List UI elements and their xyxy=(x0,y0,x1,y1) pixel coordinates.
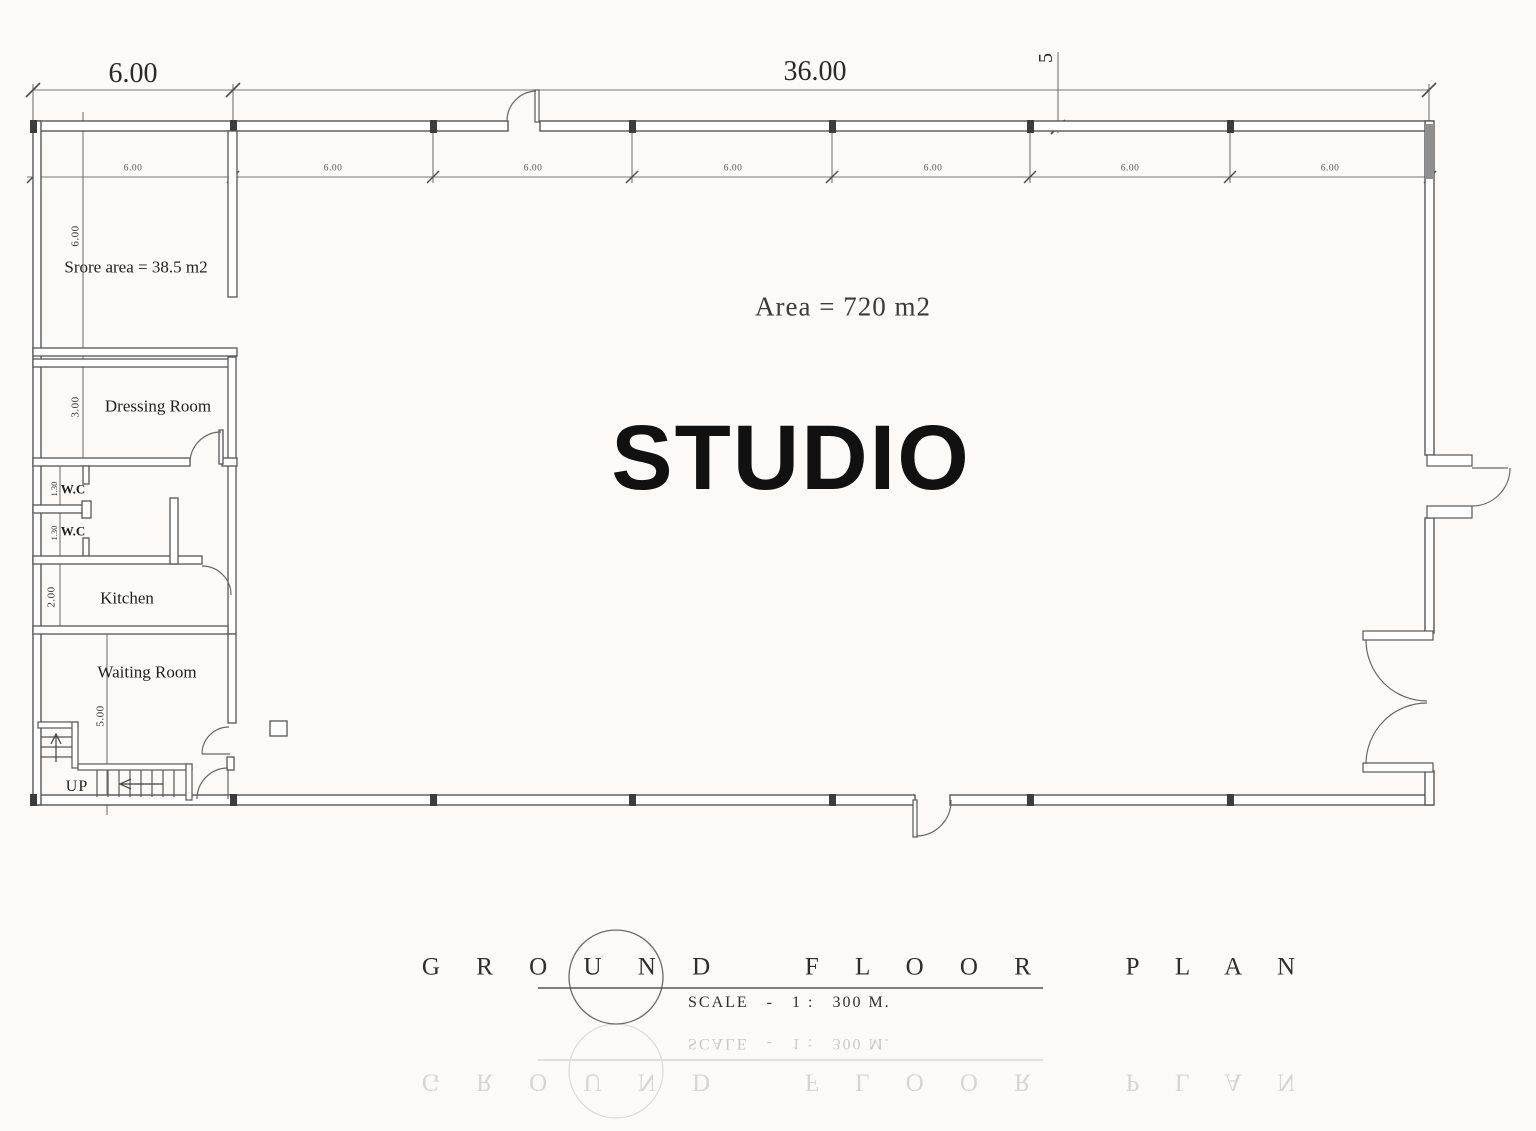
title-block-title: G R O U N D F L O O R P L A N xyxy=(422,955,1302,980)
dim-bay-3: 6.00 xyxy=(518,164,549,174)
dim-bay-2: 6.00 xyxy=(318,164,349,174)
hatched-column-right xyxy=(1425,124,1434,179)
dim-waiting-height: 5.00 xyxy=(96,705,107,726)
dim-bay-4: 6.00 xyxy=(718,164,749,174)
dim-wc2-height: 1.30 xyxy=(50,526,59,541)
room-label-store: Srore area = 38.5 m2 xyxy=(64,259,207,276)
dim-bay-6: 6.00 xyxy=(1115,164,1146,174)
dim-kitchen-height: 2.00 xyxy=(47,586,58,607)
title-block-title-reflection: G R O U N D F L O O R P L A N xyxy=(422,1070,1302,1095)
title-block-scale: SCALE - 1 : 300 M. xyxy=(688,995,891,1011)
dim-bay-7: 6.00 xyxy=(1315,164,1346,174)
dim-bay-1: 6.00 xyxy=(118,164,149,174)
dim-top-main: 36.00 xyxy=(784,58,847,86)
studio-name-label: STUDIO xyxy=(611,412,971,504)
stairs xyxy=(38,722,192,800)
dim-grid-marker: 5 xyxy=(1036,53,1056,63)
room-label-wc1: W.C xyxy=(61,483,85,496)
studio-column xyxy=(270,721,287,736)
dim-bay-5: 6.00 xyxy=(918,164,949,174)
title-block-scale-reflection: SCALE - 1 : 300 M. xyxy=(688,1035,891,1051)
room-label-wc2: W.C xyxy=(61,525,85,538)
dim-wc1-height: 1.30 xyxy=(50,482,59,497)
dim-store-height: 6.00 xyxy=(71,225,82,246)
room-label-waiting: Waiting Room xyxy=(97,664,196,681)
dim-top-left: 6.00 xyxy=(109,60,158,88)
room-label-kitchen: Kitchen xyxy=(100,590,154,607)
room-label-dressing: Dressing Room xyxy=(105,398,211,415)
studio-area-label: Area = 720 m2 xyxy=(755,294,931,321)
floor-plan-canvas: 6.00 36.00 5 6.00 6.00 6.00 6.00 6.00 6.… xyxy=(0,0,1536,1131)
dim-dressing-height: 3.00 xyxy=(71,396,82,417)
stairs-up-label: UP xyxy=(66,779,88,795)
